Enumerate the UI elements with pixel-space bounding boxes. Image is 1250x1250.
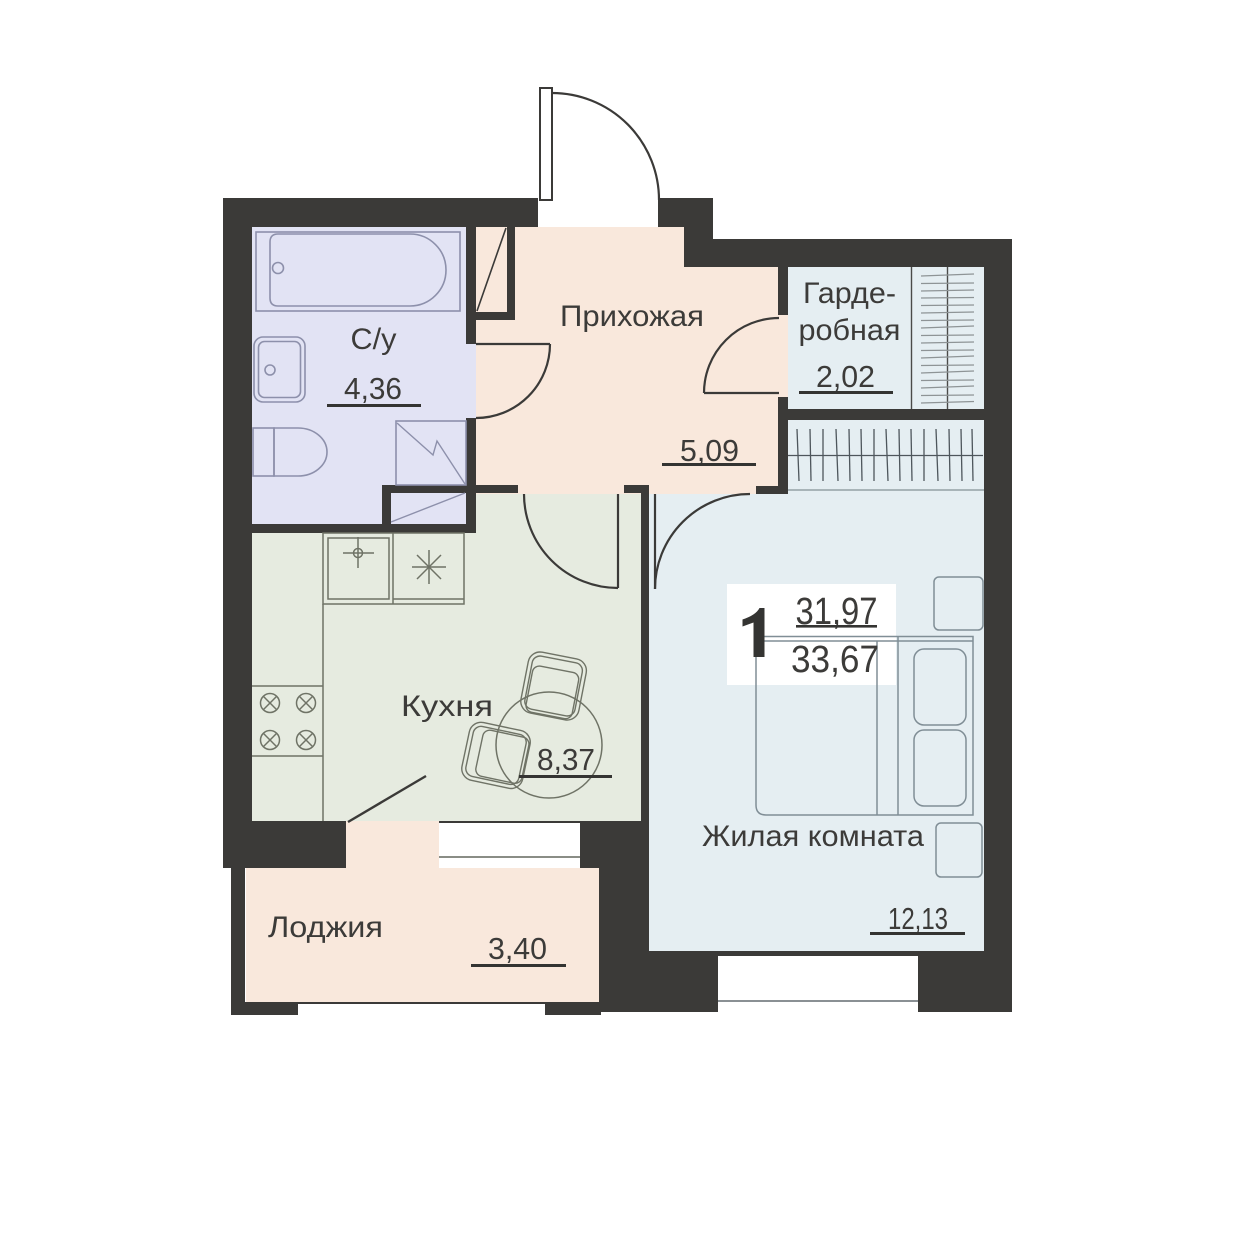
svg-text:2,02: 2,02: [816, 359, 875, 394]
svg-text:Прихожая: Прихожая: [560, 300, 704, 333]
svg-text:Кухня: Кухня: [401, 690, 493, 723]
svg-text:8,37: 8,37: [537, 742, 595, 777]
svg-text:Гарде-: Гарде-: [803, 277, 896, 310]
svg-text:робная: робная: [799, 314, 901, 347]
svg-text:33,67: 33,67: [791, 639, 879, 681]
svg-text:С/у: С/у: [351, 323, 397, 356]
svg-text:Лоджия: Лоджия: [268, 911, 383, 944]
svg-text:12,13: 12,13: [888, 901, 948, 936]
svg-text:4,36: 4,36: [344, 371, 402, 406]
svg-text:3,40: 3,40: [488, 931, 547, 966]
svg-text:5,09: 5,09: [680, 433, 739, 468]
svg-text:Жилая комната: Жилая комната: [702, 820, 925, 853]
